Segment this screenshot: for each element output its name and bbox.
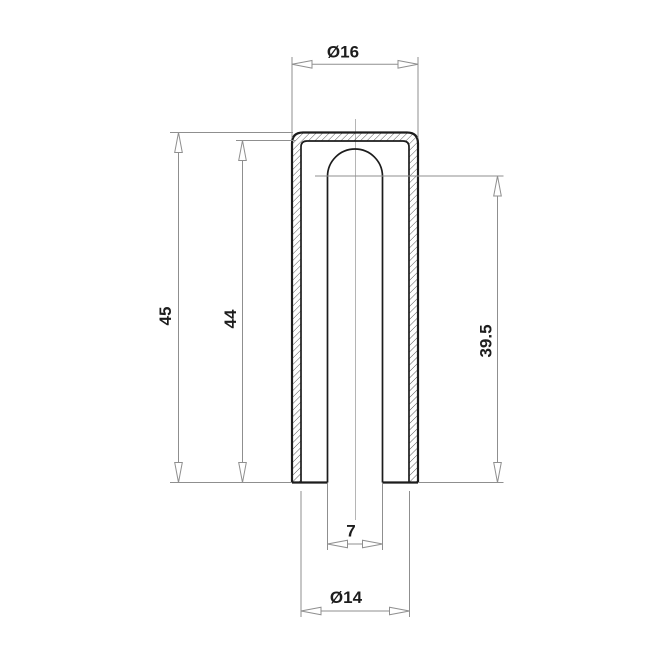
arrow-right-icon <box>363 540 383 548</box>
arrow-right-icon <box>398 61 418 69</box>
dimension-label: Ø14 <box>330 588 363 607</box>
arrow-down-icon <box>494 463 502 483</box>
arrow-up-icon <box>239 141 247 161</box>
dimension-inner-depth: 44 <box>221 141 296 483</box>
dimension-label: 39.5 <box>477 324 496 357</box>
dimension-label: 44 <box>221 309 240 328</box>
arrow-down-icon <box>239 463 247 483</box>
dimension-label: 45 <box>156 307 175 326</box>
section-view-drawing: Ø16 45 44 39.5 7 <box>0 0 650 650</box>
arrow-left-icon <box>328 540 348 548</box>
arrow-up-icon <box>175 133 183 153</box>
dimension-label: Ø16 <box>327 43 359 62</box>
arrow-right-icon <box>390 607 410 615</box>
dimension-overall-height: 45 <box>156 133 293 483</box>
dimension-label: 7 <box>346 522 355 541</box>
technical-drawing-canvas: Ø16 45 44 39.5 7 <box>0 0 650 650</box>
arrow-left-icon <box>292 61 312 69</box>
arrow-up-icon <box>494 176 502 196</box>
arrow-down-icon <box>175 463 183 483</box>
arrow-left-icon <box>301 607 321 615</box>
